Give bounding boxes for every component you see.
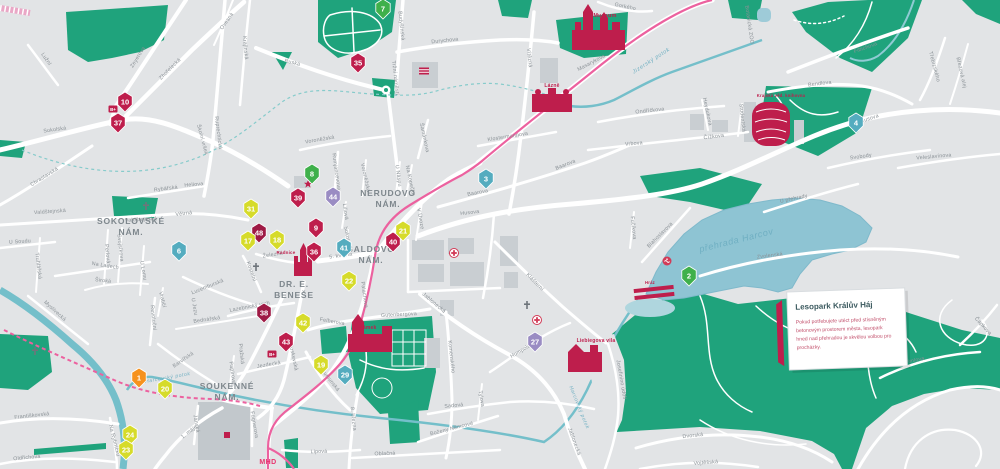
marker-number: 37: [114, 119, 122, 128]
landmark-label: Muzeum: [593, 13, 616, 19]
roundabout-icon: [382, 86, 391, 95]
marker-number: 35: [354, 59, 362, 68]
marker-number: 1: [137, 374, 141, 383]
landmark-label: Krajská věd. knihovna: [757, 93, 806, 98]
marker-number: 2: [687, 272, 691, 281]
marker-number: 6: [177, 247, 181, 256]
parking-icon: B+: [109, 106, 118, 113]
marker-number: 24: [126, 431, 135, 440]
marker-number: 29: [341, 371, 349, 380]
marker-number: 19: [317, 361, 325, 370]
landmark-label: Lázně: [544, 83, 559, 89]
marker-number: 42: [299, 319, 307, 328]
square-label: SOUKENNÉ: [200, 381, 255, 391]
marker-number: 48: [255, 229, 263, 238]
marker-number: 21: [399, 227, 407, 236]
callout-line: procházky.: [797, 344, 821, 351]
marker-number: 9: [314, 224, 318, 233]
square-label: NÁM.: [215, 392, 240, 402]
street-label: Lipová: [310, 449, 327, 456]
street-label: Oblačná: [374, 451, 395, 458]
marker-number: 39: [294, 194, 302, 203]
marker-number: 36: [310, 248, 318, 257]
marker-number: 31: [247, 205, 255, 214]
marker-number: 8: [310, 170, 314, 179]
square-label: NERUDOVO: [360, 188, 416, 198]
hospital-icon: [533, 316, 542, 325]
svg-text:B+: B+: [269, 352, 275, 357]
mall-icon: [224, 432, 230, 438]
square-label: NÁM.: [376, 199, 401, 209]
square-label: NÁM.: [119, 227, 144, 237]
info-callout: Lesopark Králův Háj Pokud potřebujete ut…: [776, 288, 911, 374]
transit-hub-label: MHD: [259, 459, 276, 466]
swim-icon: [663, 257, 672, 266]
marker-number: 18: [273, 236, 281, 245]
marker-number: 40: [389, 238, 397, 247]
marker-number: 44: [329, 193, 338, 202]
marker-number: 22: [345, 277, 353, 286]
marker-number: 17: [244, 237, 252, 246]
flag-icon: [419, 68, 429, 75]
square-label: DR. E.: [279, 279, 309, 289]
library-building: [752, 102, 790, 146]
parking-icon: B+: [268, 351, 277, 358]
marker-number: 23: [122, 446, 130, 455]
square-label: NÁM.: [359, 255, 384, 265]
marker-number: 7: [381, 5, 385, 14]
square-label: SOKOLOVSKÉ: [97, 216, 165, 226]
marker-number: 10: [121, 98, 129, 107]
square-label: BENEŠE: [274, 289, 314, 300]
landmark-label: Radnice: [277, 250, 296, 255]
marker-number: 41: [340, 244, 348, 253]
marker-number: 43: [282, 338, 290, 347]
landmark-label: Hráz: [645, 280, 655, 285]
landmark-label: Liebiegova vila: [577, 338, 616, 344]
liberec-tourist-map: B+B+ LužníSokolskáZeyerovaZhořeleckáOves…: [0, 0, 1000, 469]
marker-number: 3: [484, 175, 488, 184]
svg-text:B+: B+: [110, 107, 116, 112]
hospital-icon: [450, 249, 459, 258]
landmark-label: Zámek: [360, 325, 377, 331]
marker-number: 38: [260, 309, 268, 318]
marker-number: 20: [161, 385, 169, 394]
spa-building: [532, 88, 572, 112]
map-canvas: B+B+ LužníSokolskáZeyerovaZhořeleckáOves…: [0, 0, 1000, 469]
marker-number: 27: [531, 338, 539, 347]
